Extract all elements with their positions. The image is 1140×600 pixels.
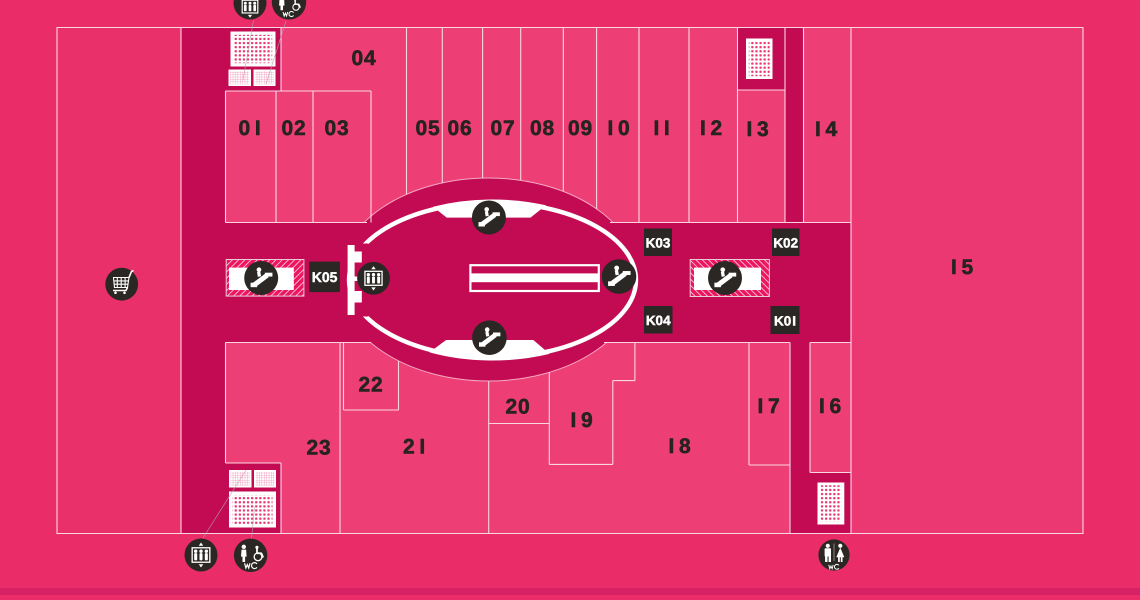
svg-text:I2: I2 — [700, 117, 723, 140]
svg-text:05: 05 — [416, 117, 441, 140]
svg-text:I6: I6 — [819, 395, 842, 418]
svg-text:K05: K05 — [312, 269, 338, 285]
svg-text:23: 23 — [307, 437, 332, 460]
svg-text:03: 03 — [325, 117, 350, 140]
svg-text:06: 06 — [448, 117, 473, 140]
svg-text:07: 07 — [491, 117, 516, 140]
svg-text:I3: I3 — [747, 118, 770, 141]
svg-text:I7: I7 — [758, 395, 781, 418]
svg-text:02: 02 — [282, 117, 307, 140]
svg-text:I5: I5 — [951, 256, 974, 279]
svg-text:09: 09 — [568, 117, 593, 140]
svg-text:0I: 0I — [239, 117, 262, 140]
svg-text:I9: I9 — [571, 409, 594, 432]
svg-text:04: 04 — [352, 47, 377, 70]
svg-text:K02: K02 — [773, 236, 798, 251]
svg-text:20: 20 — [506, 396, 531, 419]
svg-text:08: 08 — [530, 117, 555, 140]
svg-text:I0: I0 — [608, 117, 631, 140]
svg-text:I8: I8 — [669, 435, 692, 458]
svg-text:22: 22 — [359, 374, 384, 397]
svg-text:2I: 2I — [403, 436, 426, 459]
svg-text:K0I: K0I — [774, 314, 796, 329]
svg-text:I4: I4 — [815, 118, 838, 141]
svg-text:K03: K03 — [646, 236, 671, 251]
svg-text:K04: K04 — [646, 313, 671, 328]
